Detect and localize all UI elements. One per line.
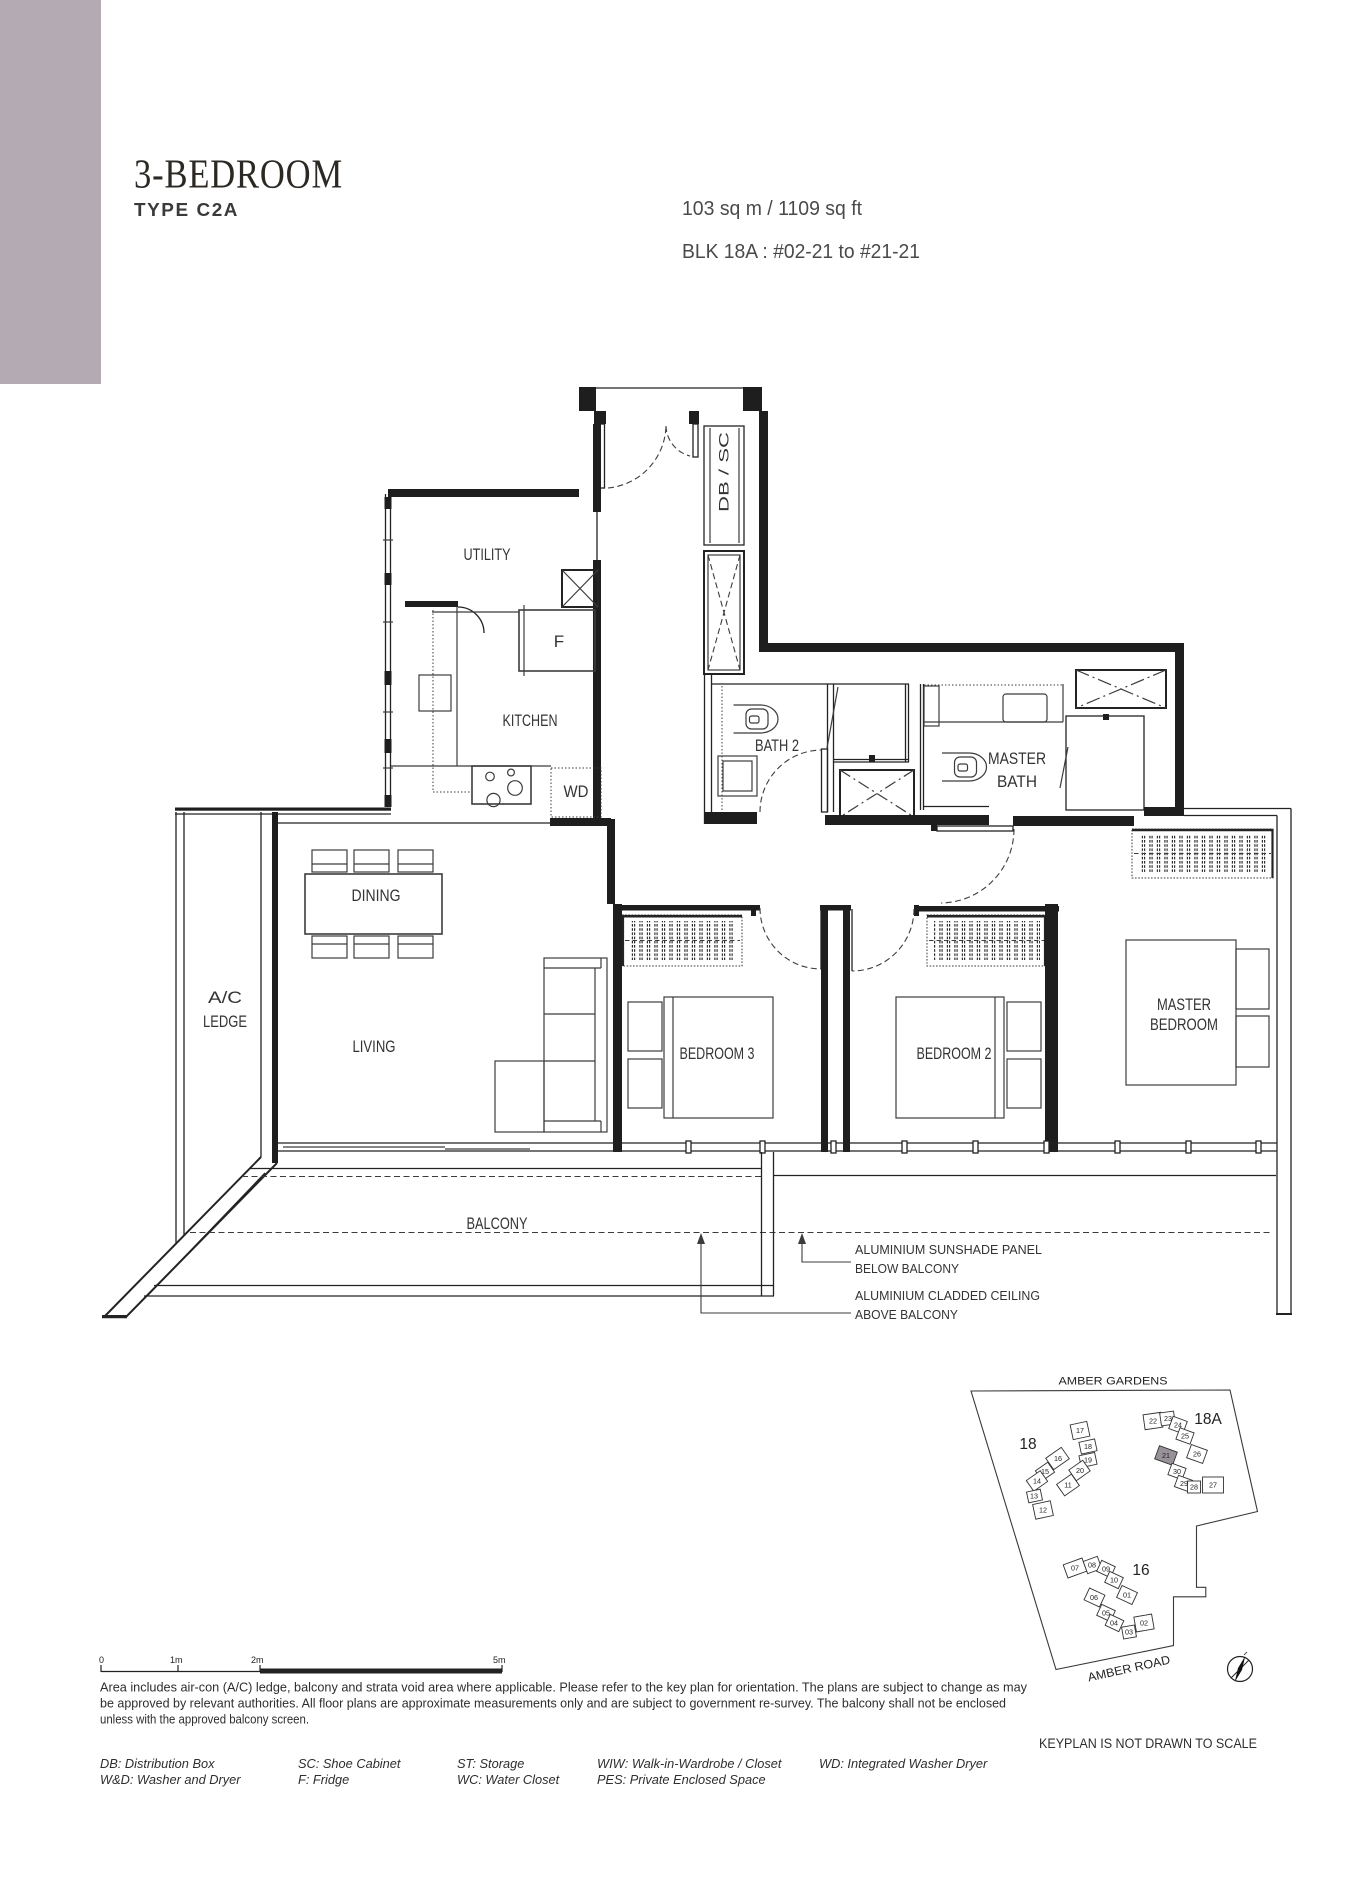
svg-text:10: 10 — [1110, 1576, 1118, 1585]
svg-text:F: F — [554, 632, 564, 651]
svg-text:BEDROOM 2: BEDROOM 2 — [917, 1044, 992, 1063]
svg-text:Area includes air-con (A/C) le: Area includes air-con (A/C) ledge, balco… — [100, 1680, 1028, 1695]
svg-text:BELOW BALCONY: BELOW BALCONY — [855, 1261, 959, 1276]
svg-text:5m: 5m — [493, 1655, 506, 1665]
svg-text:21: 21 — [1162, 1451, 1170, 1460]
svg-text:103 sq m / 1109 sq ft: 103 sq m / 1109 sq ft — [682, 198, 862, 220]
svg-text:BLK 18A : #02-21 to #21-21: BLK 18A : #02-21 to #21-21 — [682, 241, 920, 263]
svg-text:06: 06 — [1090, 1593, 1098, 1602]
svg-text:15: 15 — [1041, 1467, 1049, 1476]
svg-text:ST: Storage: ST: Storage — [457, 1756, 524, 1771]
svg-text:1m: 1m — [170, 1655, 183, 1665]
svg-text:unless with the approved balco: unless with the approved balcony screen. — [100, 1712, 309, 1727]
svg-text:24: 24 — [1174, 1421, 1182, 1430]
svg-text:20: 20 — [1076, 1466, 1084, 1475]
svg-text:KITCHEN: KITCHEN — [503, 711, 558, 730]
svg-text:ABOVE BALCONY: ABOVE BALCONY — [855, 1307, 958, 1322]
svg-text:2m: 2m — [251, 1655, 264, 1665]
svg-text:ALUMINIUM SUNSHADE PANEL: ALUMINIUM SUNSHADE PANEL — [855, 1242, 1042, 1257]
svg-text:WD: Integrated Washer Dryer: WD: Integrated Washer Dryer — [819, 1756, 988, 1771]
svg-text:07: 07 — [1071, 1564, 1079, 1573]
svg-text:28: 28 — [1190, 1483, 1198, 1492]
svg-text:DB / SC: DB / SC — [716, 432, 732, 512]
svg-text:AMBER GARDENS: AMBER GARDENS — [1059, 1376, 1168, 1388]
svg-text:UTILITY: UTILITY — [464, 545, 511, 564]
svg-text:16: 16 — [1132, 1562, 1149, 1579]
svg-text:A/C: A/C — [208, 988, 242, 1007]
svg-text:0: 0 — [99, 1655, 104, 1665]
svg-text:14: 14 — [1033, 1477, 1041, 1486]
svg-text:26: 26 — [1193, 1450, 1201, 1459]
svg-text:17: 17 — [1076, 1426, 1084, 1435]
svg-text:MASTER: MASTER — [988, 749, 1046, 768]
svg-text:WD: WD — [564, 782, 589, 801]
svg-text:30: 30 — [1173, 1467, 1181, 1476]
svg-text:18A: 18A — [1194, 1411, 1222, 1428]
svg-text:DINING: DINING — [352, 886, 401, 905]
svg-text:LIVING: LIVING — [353, 1037, 396, 1056]
svg-text:22: 22 — [1149, 1417, 1157, 1426]
svg-text:BATH: BATH — [997, 772, 1037, 791]
svg-text:12: 12 — [1039, 1506, 1047, 1515]
svg-text:19: 19 — [1084, 1456, 1092, 1465]
svg-text:23: 23 — [1164, 1414, 1172, 1423]
svg-text:27: 27 — [1209, 1481, 1217, 1490]
svg-text:W&D: Washer and Dryer: W&D: Washer and Dryer — [100, 1772, 241, 1787]
svg-text:25: 25 — [1181, 1432, 1189, 1441]
svg-text:3-BEDROOM: 3-BEDROOM — [134, 151, 343, 197]
svg-text:DB: Distribution Box: DB: Distribution Box — [100, 1756, 215, 1771]
svg-text:PES: Private Enclosed Space: PES: Private Enclosed Space — [597, 1772, 766, 1787]
svg-text:18: 18 — [1019, 1436, 1036, 1453]
svg-text:09: 09 — [1102, 1565, 1110, 1574]
svg-text:13: 13 — [1030, 1492, 1038, 1501]
svg-text:F: Fridge: F: Fridge — [298, 1772, 349, 1787]
svg-text:08: 08 — [1088, 1561, 1096, 1570]
svg-text:WIW: Walk-in-Wardrobe / Closet: WIW: Walk-in-Wardrobe / Closet — [597, 1756, 782, 1771]
svg-text:05: 05 — [1102, 1609, 1110, 1618]
svg-text:BALCONY: BALCONY — [467, 1214, 528, 1233]
svg-text:be approved by relevant author: be approved by relevant authorities. All… — [100, 1696, 1006, 1711]
svg-text:16: 16 — [1054, 1454, 1062, 1463]
svg-text:11: 11 — [1064, 1481, 1071, 1490]
svg-text:KEYPLAN IS NOT DRAWN TO SCALE: KEYPLAN IS NOT DRAWN TO SCALE — [1039, 1736, 1257, 1751]
svg-text:04: 04 — [1110, 1619, 1118, 1628]
svg-text:ALUMINIUM CLADDED CEILING: ALUMINIUM CLADDED CEILING — [855, 1288, 1040, 1303]
svg-text:18: 18 — [1084, 1442, 1092, 1451]
svg-text:03: 03 — [1125, 1628, 1133, 1637]
svg-text:SC: Shoe Cabinet: SC: Shoe Cabinet — [298, 1756, 401, 1771]
svg-text:LEDGE: LEDGE — [203, 1012, 247, 1031]
svg-text:MASTER: MASTER — [1157, 995, 1211, 1014]
svg-text:BEDROOM 3: BEDROOM 3 — [680, 1044, 755, 1063]
svg-text:BATH 2: BATH 2 — [755, 736, 799, 755]
svg-text:02: 02 — [1140, 1619, 1148, 1628]
svg-text:01: 01 — [1123, 1591, 1131, 1600]
svg-text:WC: Water Closet: WC: Water Closet — [457, 1772, 560, 1787]
svg-text:TYPE C2A: TYPE C2A — [134, 200, 239, 220]
svg-text:29: 29 — [1180, 1479, 1188, 1488]
svg-text:BEDROOM: BEDROOM — [1150, 1015, 1218, 1034]
